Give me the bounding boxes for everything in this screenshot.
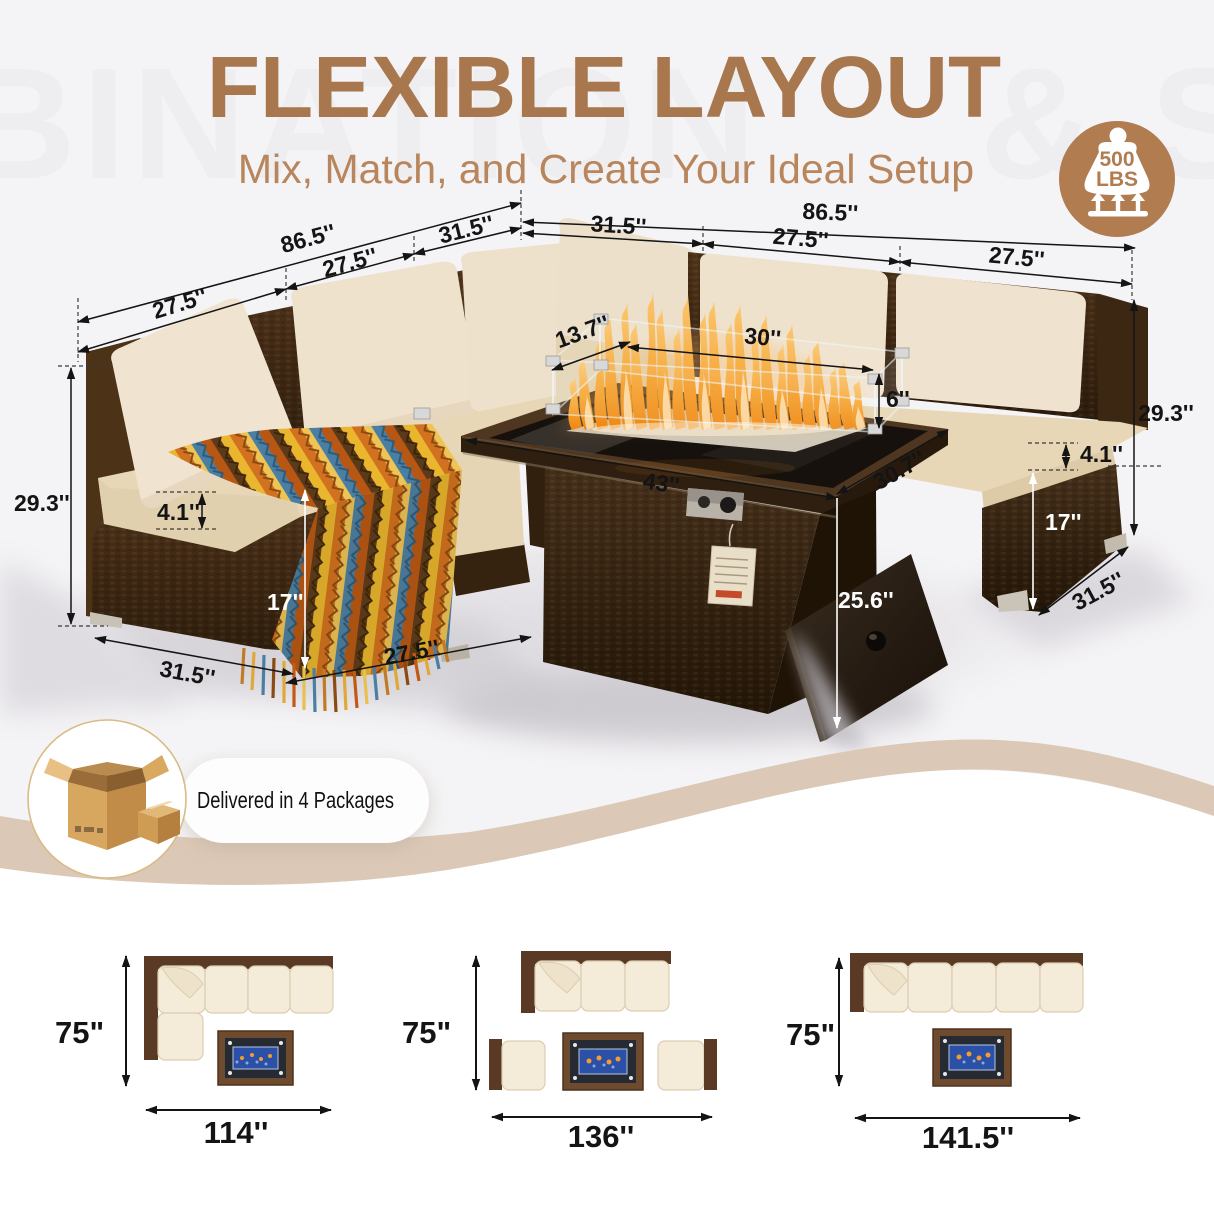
svg-text:27.5'': 27.5'' — [988, 241, 1046, 272]
svg-text:17'': 17'' — [267, 589, 304, 615]
svg-text:136'': 136'' — [568, 1119, 634, 1154]
svg-text:86.5'': 86.5'' — [802, 198, 859, 226]
svg-text:31.5'': 31.5'' — [590, 210, 647, 239]
svg-text:4.1'': 4.1'' — [157, 499, 200, 525]
svg-text:114'': 114'' — [204, 1115, 269, 1150]
svg-text:4.1'': 4.1'' — [1080, 441, 1123, 467]
svg-text:75": 75" — [402, 1015, 451, 1050]
svg-text:25.6'': 25.6'' — [838, 587, 894, 613]
svg-text:29.3'': 29.3'' — [14, 490, 70, 516]
svg-text:6'': 6'' — [886, 386, 910, 412]
svg-text:LBS: LBS — [1096, 168, 1138, 191]
svg-text:17'': 17'' — [1045, 509, 1082, 535]
svg-text:141.5'': 141.5'' — [922, 1120, 1014, 1155]
svg-text:75": 75" — [786, 1017, 835, 1052]
svg-text:30'': 30'' — [743, 322, 782, 351]
svg-text:Mix, Match, and Create Your Id: Mix, Match, and Create Your Ideal Setup — [238, 146, 974, 192]
svg-text:75": 75" — [55, 1015, 104, 1050]
svg-text:Delivered in 4 Packages: Delivered in 4 Packages — [197, 787, 394, 813]
svg-text:29.3'': 29.3'' — [1138, 400, 1194, 426]
svg-text:27.5'': 27.5'' — [772, 223, 830, 254]
svg-text:FLEXIBLE LAYOUT: FLEXIBLE LAYOUT — [207, 39, 1001, 136]
